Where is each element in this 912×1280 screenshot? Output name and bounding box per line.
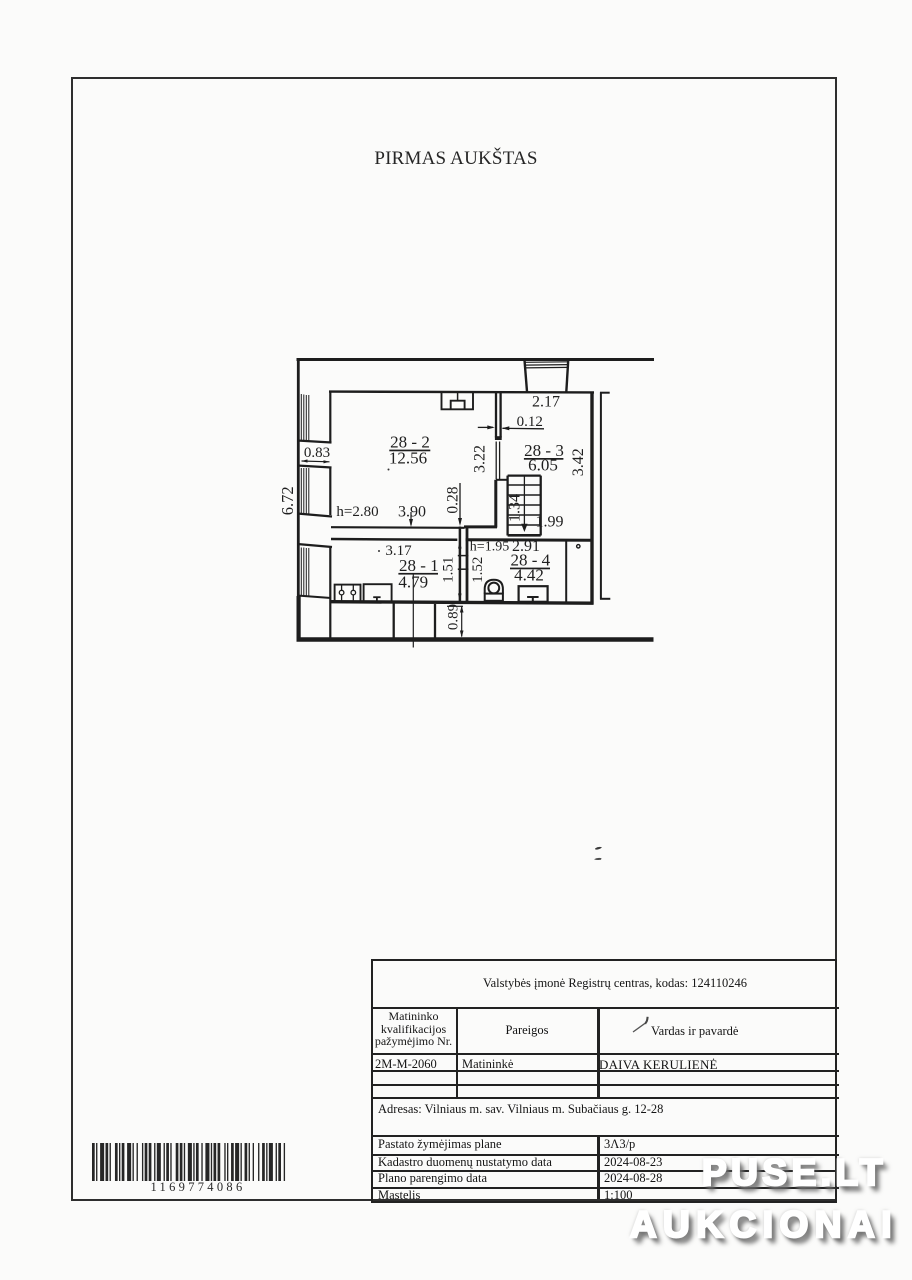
svg-text:0.28: 0.28 <box>445 486 462 513</box>
svg-text:0.89: 0.89 <box>446 604 462 630</box>
svg-text:h=2.80: h=2.80 <box>336 504 378 520</box>
svg-text:3.22: 3.22 <box>472 445 489 473</box>
svg-text:h=1.95: h=1.95 <box>470 540 509 555</box>
svg-text:1.34: 1.34 <box>506 494 523 522</box>
svg-text:3.90: 3.90 <box>398 504 426 521</box>
svg-text:12.56: 12.56 <box>389 449 427 468</box>
svg-text:4.42: 4.42 <box>514 566 544 585</box>
svg-text:6.72: 6.72 <box>278 486 297 515</box>
svg-text:1.52: 1.52 <box>470 557 486 583</box>
svg-text:0.83: 0.83 <box>304 445 330 461</box>
svg-text:2.17: 2.17 <box>532 394 560 411</box>
svg-text:0.12: 0.12 <box>517 414 543 430</box>
svg-text:3.42: 3.42 <box>570 448 587 476</box>
svg-text:4.79: 4.79 <box>398 573 428 592</box>
svg-text:6.05: 6.05 <box>528 455 558 474</box>
svg-text:1.99: 1.99 <box>536 514 564 531</box>
svg-text:1.51: 1.51 <box>441 557 457 583</box>
